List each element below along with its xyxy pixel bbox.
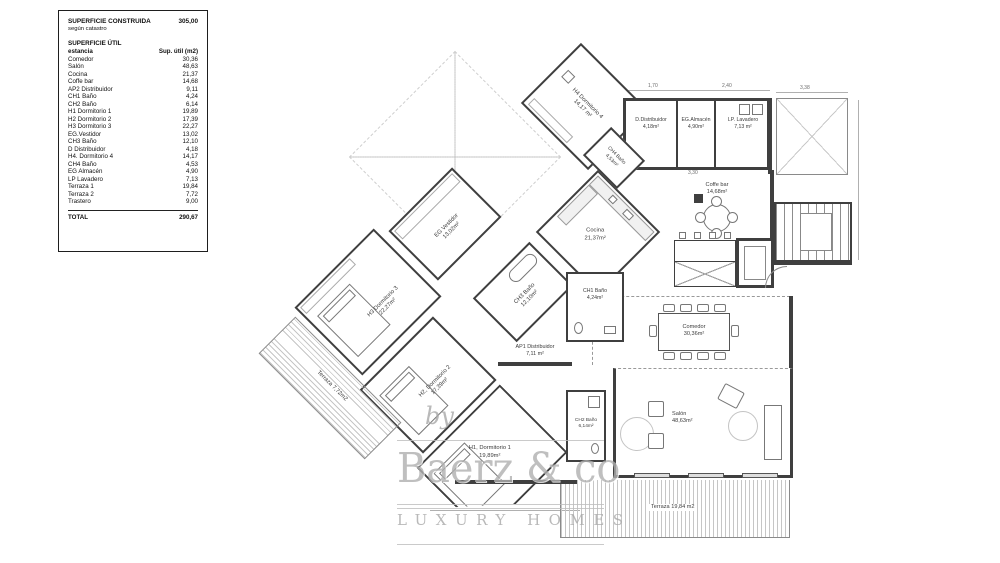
legend-room-name: H2 Dormitorio 2 bbox=[68, 116, 111, 124]
legend-row: EG.Vestidor13,02 bbox=[68, 131, 198, 139]
shower bbox=[588, 396, 600, 408]
window-sill bbox=[688, 473, 724, 478]
col-area-header: Sup. útil (m2) bbox=[159, 48, 198, 56]
legend-room-name: H3 Dormitorio 3 bbox=[68, 123, 111, 131]
legend-room-value: 4,53 bbox=[186, 161, 198, 169]
legend-row: AP2 Distribuidor9,11 bbox=[68, 86, 198, 94]
legend-row: H1 Dormitorio 119,89 bbox=[68, 108, 198, 116]
kitchen-counter bbox=[557, 185, 598, 226]
terraza-1: Terraza 19,84 m2 bbox=[560, 480, 790, 538]
room-ch3-bano: CH3 Baño 12,10m² bbox=[473, 242, 573, 342]
legend-subtitle: según catastro bbox=[68, 26, 198, 33]
room-label-ap1: AP1 Distribuidor 7,11 m² bbox=[500, 344, 570, 358]
comedor-right-wall bbox=[789, 296, 793, 370]
legend-row: CH4 Baño4,53 bbox=[68, 161, 198, 169]
legend-row: Cocina21,37 bbox=[68, 71, 198, 79]
constructed-value: 305,00 bbox=[178, 18, 198, 26]
legend-row: D Distribuidor4,18 bbox=[68, 146, 198, 154]
dimension-line bbox=[776, 92, 848, 93]
dining-chair bbox=[680, 304, 692, 312]
dining-chair bbox=[649, 325, 657, 337]
legend-room-name: Cocina bbox=[68, 71, 87, 79]
dining-chair bbox=[680, 352, 692, 360]
stairs-bottom-wall bbox=[774, 262, 852, 265]
legend-room-name: Trastero bbox=[68, 198, 91, 206]
floorplan-page: SUPERFICIE CONSTRUIDA 305,00 según catas… bbox=[0, 0, 1000, 563]
legend-row: Comedor30,36 bbox=[68, 56, 198, 64]
legend-room-value: 9,11 bbox=[186, 86, 198, 94]
legend-row: H4. Dormitorio 414,17 bbox=[68, 153, 198, 161]
legend-room-value: 7,72 bbox=[186, 191, 198, 199]
legend-room-value: 6,14 bbox=[186, 101, 198, 109]
legend-column-header: estancia Sup. útil (m2) bbox=[68, 48, 198, 56]
legend-panel: SUPERFICIE CONSTRUIDA 305,00 según catas… bbox=[58, 10, 208, 252]
legend-total-row: TOTAL 290,67 bbox=[68, 210, 198, 222]
legend-room-value: 19,89 bbox=[183, 108, 198, 116]
divider-wall bbox=[676, 101, 678, 167]
legend-util-title: SUPERFICIE ÚTIL bbox=[68, 40, 198, 48]
legend-room-name: CH1 Baño bbox=[68, 93, 97, 101]
legend-room-value: 21,37 bbox=[183, 71, 198, 79]
room-label-lavadero: LP. Lavadero 7,13 m² bbox=[716, 117, 770, 131]
terraza-1-label: Terraza 19,84 m2 bbox=[649, 504, 697, 511]
legend-room-name: EG Almacén bbox=[68, 168, 102, 176]
legend-constructed-row: SUPERFICIE CONSTRUIDA 305,00 bbox=[68, 18, 198, 26]
storage-unit bbox=[674, 261, 736, 287]
band-right-wall bbox=[768, 98, 772, 174]
chair bbox=[711, 196, 722, 207]
col-room-header: estancia bbox=[68, 48, 93, 56]
dimension-label: 1,70 bbox=[648, 83, 658, 89]
legend-row: LP Lavadero7,13 bbox=[68, 176, 198, 184]
room-label-ch4: CH4 Baño 4,53m² bbox=[594, 138, 634, 178]
dining-chair bbox=[714, 304, 726, 312]
legend-room-name: Comedor bbox=[68, 56, 93, 64]
legend-row: H2 Dormitorio 217,39 bbox=[68, 116, 198, 124]
window-sill bbox=[634, 473, 670, 478]
stair-landing bbox=[800, 213, 832, 251]
legend-room-name: H4. Dormitorio 4 bbox=[68, 153, 113, 161]
room-label-cocina: Cocina 21,37m² bbox=[553, 227, 637, 242]
legend-room-value: 48,63 bbox=[183, 63, 198, 71]
room-label-almacen: EG.Almacén 4,90m² bbox=[678, 117, 714, 131]
dining-chair bbox=[714, 352, 726, 360]
legend-room-name: CH2 Baño bbox=[68, 101, 97, 109]
legend-room-name: LP Lavadero bbox=[68, 176, 103, 184]
legend-row: CH1 Baño4,24 bbox=[68, 93, 198, 101]
legend-room-value: 30,36 bbox=[183, 56, 198, 64]
constructed-label: SUPERFICIE CONSTRUIDA bbox=[68, 18, 151, 26]
bar-stool bbox=[709, 232, 716, 239]
legend-room-name: Salón bbox=[68, 63, 84, 71]
room-label-ch1: CH1 Baño 4,24m² bbox=[568, 288, 622, 302]
dining-chair bbox=[697, 304, 709, 312]
rooftop-void bbox=[776, 98, 848, 175]
elevator-car bbox=[744, 246, 766, 280]
armchair bbox=[648, 433, 664, 449]
column bbox=[694, 194, 703, 203]
lounge-chair bbox=[717, 383, 745, 409]
legend-room-value: 4,18 bbox=[186, 146, 198, 154]
ap1-wall bbox=[498, 362, 572, 366]
legend-room-name: Coffe bar bbox=[68, 78, 93, 86]
legend-room-name: CH3 Baño bbox=[68, 138, 97, 146]
room-ch1-bano: CH1 Baño 4,24m² bbox=[566, 272, 624, 342]
legend-room-name: H1 Dormitorio 1 bbox=[68, 108, 111, 116]
legend-row: Terraza 119,84 bbox=[68, 183, 198, 191]
legend-room-name: Terraza 1 bbox=[68, 183, 94, 191]
dimension-label: 2,40 bbox=[722, 83, 732, 89]
dining-chair bbox=[697, 352, 709, 360]
armchair bbox=[648, 401, 664, 417]
legend-room-value: 14,68 bbox=[183, 78, 198, 86]
legend-room-value: 7,13 bbox=[186, 176, 198, 184]
bar-stool bbox=[694, 232, 701, 239]
legend-room-name: Terraza 2 bbox=[68, 191, 94, 199]
dining-chair bbox=[731, 325, 739, 337]
legend-row: H3 Dormitorio 322,27 bbox=[68, 123, 198, 131]
legend-room-name: CH4 Baño bbox=[68, 161, 97, 169]
dining-chair bbox=[663, 352, 675, 360]
room-label-ddistribuidor: D.Distribuidor 4,18m² bbox=[626, 117, 676, 131]
dimension-label: 3,38 bbox=[800, 85, 810, 91]
bar-stool bbox=[724, 232, 731, 239]
rug-circle bbox=[728, 411, 758, 441]
legend-row: Terraza 27,72 bbox=[68, 191, 198, 199]
dining-table: Comedor 30,36m² bbox=[658, 313, 730, 351]
legend-room-value: 14,17 bbox=[183, 153, 198, 161]
h1-bottom-wall bbox=[455, 480, 577, 484]
legend-room-value: 4,24 bbox=[186, 93, 198, 101]
legend-row: Salón48,63 bbox=[68, 63, 198, 71]
chair bbox=[695, 212, 706, 223]
chair bbox=[727, 212, 738, 223]
dining-chair bbox=[663, 304, 675, 312]
legend-room-value: 9,00 bbox=[186, 198, 198, 206]
legend-room-value: 13,02 bbox=[183, 131, 198, 139]
legend-room-value: 4,90 bbox=[186, 168, 198, 176]
sofa-unit bbox=[764, 405, 782, 460]
window-sill bbox=[742, 473, 778, 478]
staircase bbox=[774, 202, 852, 262]
toilet bbox=[591, 443, 599, 454]
legend-room-value: 22,27 bbox=[183, 123, 198, 131]
room-salon: Salón 48,63m² bbox=[613, 368, 793, 478]
room-ch2-bano: CH2 Baño 6,14m² bbox=[566, 390, 606, 462]
washing-machine bbox=[752, 104, 763, 115]
room-label-salon: Salón 48,63m² bbox=[672, 411, 714, 426]
legend-row: EG Almacén4,90 bbox=[68, 168, 198, 176]
dimension-line bbox=[858, 100, 859, 260]
coffebar-zone: Coffe bar 14,68m² bbox=[645, 172, 778, 240]
total-value: 290,67 bbox=[179, 214, 198, 222]
sink bbox=[604, 326, 616, 334]
service-band: D.Distribuidor 4,18m² EG.Almacén 4,90m² … bbox=[623, 98, 770, 170]
legend-room-name: AP2 Distribuidor bbox=[68, 86, 113, 94]
toilet bbox=[574, 322, 583, 334]
bar-counter bbox=[674, 240, 736, 262]
total-label: TOTAL bbox=[68, 214, 88, 222]
room-label-comedor: Comedor 30,36m² bbox=[659, 324, 729, 339]
legend-row: Coffe bar14,68 bbox=[68, 78, 198, 86]
legend-room-value: 12,10 bbox=[183, 138, 198, 146]
legend-row: Trastero9,00 bbox=[68, 198, 198, 206]
legend-row: CH2 Baño6,14 bbox=[68, 101, 198, 109]
room-label-ch3: CH3 Baño 12,10m² bbox=[496, 265, 560, 329]
legend-room-value: 17,39 bbox=[183, 116, 198, 124]
dimension-line bbox=[625, 90, 770, 91]
bar-stool bbox=[679, 232, 686, 239]
legend-room-value: 19,84 bbox=[183, 183, 198, 191]
dimension-line bbox=[430, 510, 580, 511]
room-label-ch2: CH2 Baño 6,14m² bbox=[568, 418, 604, 430]
divider-wall bbox=[714, 101, 716, 167]
bathtub bbox=[506, 251, 540, 285]
legend-room-name: EG.Vestidor bbox=[68, 131, 101, 139]
legend-room-name: D Distribuidor bbox=[68, 146, 105, 154]
washing-machine bbox=[739, 104, 750, 115]
chair bbox=[561, 70, 575, 84]
legend-row: CH3 Baño12,10 bbox=[68, 138, 198, 146]
